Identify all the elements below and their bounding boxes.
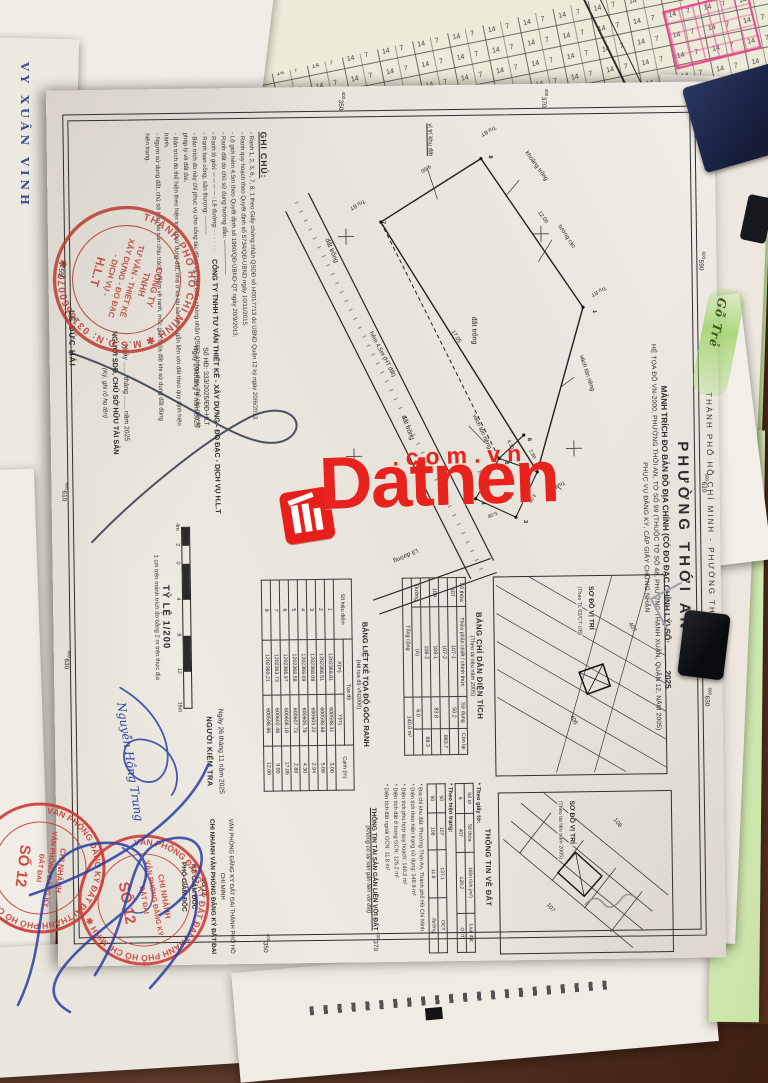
col-point-id: Số hiệu điểm: [333, 579, 352, 639]
grid-coordinate-label: 600610: [700, 473, 709, 492]
sketch-1-caption: SƠ ĐỒ VỊ TRÍ: [587, 584, 595, 632]
table-cell: OCT: [438, 898, 448, 953]
grid-coordinate-label: 600630: [703, 687, 712, 706]
legal-info-table: Số tờ Số thửa Diện tích (m²) Loại đất 64…: [455, 783, 476, 953]
watermark-domain-suffix: .com.vn: [392, 440, 529, 472]
table-cell: [440, 697, 449, 728]
table-cell: 600598.31: [326, 695, 336, 745]
info-section-legal: * Theo giấy tờ:: [475, 783, 483, 953]
table-cell: [431, 728, 440, 755]
table-cell: 1202368.08: [307, 640, 317, 695]
table-cell: [420, 578, 429, 607]
area-index-table: BẢNG CHỈ DẪN DIỆN TÍCH (Theo tài liệu nă…: [402, 577, 485, 756]
sketch-1-subcaption: (Theo TL 02/CT-UB): [576, 584, 583, 637]
col-dien-tich: Diện tích (m²): [465, 852, 475, 913]
table-cell: 107-1: [448, 607, 458, 697]
table-cell: (A): [412, 607, 422, 697]
table-cell: 600605.78: [299, 695, 309, 745]
table-cell: 1202369.09: [298, 640, 308, 695]
grid-coordinate-label: 400350: [262, 934, 271, 953]
col-x: X(m): [334, 639, 344, 694]
table-cell: 11.8: [428, 850, 438, 898]
table-cell: 12.00: [264, 746, 274, 791]
table-cell: 108: [429, 578, 438, 607]
checker-date: Ngày 26 tháng 11 năm 2025: [214, 676, 226, 826]
current-info-table: 50107137.1OCT5010811.8đường: [427, 783, 448, 953]
table-cell: 3: [306, 579, 316, 639]
table-cell: 17.05: [282, 746, 292, 791]
grid-coordinate-label: 400370: [540, 89, 549, 108]
svg-text:SỐ 12: SỐ 12: [115, 880, 140, 925]
table-cell: [413, 729, 422, 756]
location-sketch-1: 407 406 SƠ ĐỒ VỊ TRÍ (Theo TL 02/CT-UB): [493, 574, 668, 776]
table-cell: 1202363.73: [271, 640, 281, 695]
table-cell: [449, 728, 458, 755]
grid-coordinate-label: 600630: [63, 650, 72, 669]
land-info-block: THÔNG TIN VỀ ĐẤT * Theo giấy tờ: Số tờ S…: [364, 783, 494, 955]
total-value: 140.0 m²: [404, 698, 414, 756]
table-cell: 107: [437, 813, 447, 850]
table-cell: 108-2: [421, 607, 431, 697]
table-cell: 6: [279, 580, 289, 640]
col-so-thua2: Số thửa: [465, 813, 475, 852]
table-cell: 4: [297, 580, 307, 640]
svg-text:SỐ 12: SỐ 12: [12, 844, 35, 888]
scale-bar-label: 16m: [176, 702, 182, 713]
svg-text:108: 108: [612, 817, 623, 829]
col-con-lai: Còn lại: [458, 728, 467, 755]
table-cell: 1202366.97: [280, 640, 290, 695]
scale-bar-label: 12: [176, 668, 182, 674]
coords-table: Số hiệu điểm Tọa độ Cạnh (m) X(m) Y(m) 1…: [261, 578, 355, 791]
scale-bar-label: 8: [176, 633, 182, 636]
table-cell: 6: [455, 783, 464, 813]
location-sketch-2: 108 107 SƠ ĐỒ VỊ TRÍ (Theo tài liệu năm …: [498, 790, 674, 954]
total-label: Tổng cộng: [402, 578, 413, 698]
table-cell: 83.8: [431, 697, 440, 728]
table-cell: OCT: [457, 913, 467, 952]
col-loai-dat: Loại đất: [466, 913, 476, 952]
table-cell: 3.00: [327, 745, 337, 790]
scale-bar-label: 0: [175, 561, 181, 564]
binder-clip-black: [677, 609, 731, 680]
table-cell: 2: [315, 579, 325, 639]
col-so-thua: Số thửa: [456, 577, 465, 606]
plot-label: vị trí khu đất: [426, 123, 432, 156]
scale-title: TỶ LỆ 1/200: [159, 527, 173, 707]
table-cell: 600598.96: [263, 695, 273, 745]
table-cell: 1202368.51: [316, 639, 326, 694]
black-square-mark: [425, 1007, 443, 1020]
table-cell: Đường: [411, 578, 420, 607]
table-cell: 2.94: [309, 745, 319, 790]
scale-bar-label: 2: [174, 543, 180, 546]
col-coordinates: Tọa độ: [343, 639, 353, 745]
table-cell: 128.2: [456, 852, 466, 913]
grid-coordinate-label: 600610: [60, 482, 69, 501]
location-sketch-2-drawing: 108 107: [501, 791, 673, 951]
table-cell: 4.30: [300, 745, 310, 790]
table-cell: 600607.73: [290, 695, 300, 745]
plot-label: đất trống: [470, 317, 477, 345]
boundary-point-number: 7: [380, 221, 386, 224]
scale-bar-label: 4: [175, 597, 181, 600]
table-cell: 50.2: [449, 697, 458, 728]
table-cell: 107-2: [439, 607, 449, 697]
table-cell: 108: [428, 813, 438, 850]
table-cell: 8: [261, 580, 271, 640]
table-cell: 88.3: [422, 728, 431, 755]
info-section-current: * Theo hiện trạng:: [447, 783, 455, 953]
table-cell: 1: [324, 579, 334, 639]
table-cell: [438, 578, 447, 607]
table-cell: 50: [436, 784, 445, 813]
grid-coordinate-label: 400350: [337, 92, 346, 111]
table-cell: 1202360.21: [262, 640, 272, 695]
handwritten-name-vy-xuan-vinh: VY XUÂN VINH: [18, 62, 32, 209]
watermark: Datnen .com.vn: [266, 433, 670, 577]
boundary-point-number: 8: [487, 155, 493, 158]
land-info-bullet: * Địa chỉ khu đất: Phường Thới An, Thành…: [415, 783, 426, 953]
scale-block: 4m20481216m TỶ LỆ 1/200 1 cm trên mảnh t…: [152, 527, 193, 708]
table-cell: 2.80: [291, 745, 301, 790]
table-cell: 1202369.81: [325, 639, 335, 694]
tick-marks-row: [309, 980, 609, 1015]
table-cell: 600608.18: [281, 695, 291, 745]
corner-coordinates-table: BẢNG LIỆT KÊ TỌA ĐỘ GÓC RANH (Hệ tọa độ …: [261, 578, 372, 791]
checker-role: NGƯỜI KIỂM TRA: [203, 676, 216, 826]
area-table: Số thửa Thửa phân chiết / chính thức Sử …: [402, 577, 468, 756]
col-edge-length: Cạnh (m): [336, 745, 355, 791]
table-cell: 5: [288, 580, 298, 640]
table-cell: 600602.48: [272, 695, 282, 745]
col-thua-phan-chiet: Thửa phân chiết / chính thức: [457, 607, 467, 697]
table-cell: 5.08: [318, 745, 328, 790]
registry-stamp-so12-right: VĂN PHÒNG ĐĂNG KÝ ĐẤT ĐAI THÀNH PHỐ HỒ C…: [63, 819, 225, 981]
table-cell: 108-1: [430, 607, 440, 697]
green-tab-handwriting: Gỗ Trẻ: [706, 297, 729, 349]
sketch-2-caption: SƠ ĐỒ VỊ TRÍ: [568, 798, 576, 846]
sketch-2-subcaption: (Theo tài liệu năm 2005): [557, 799, 564, 862]
checker-block: Ngày 26 tháng 11 năm 2025 NGƯỜI KIỂM TRA: [203, 676, 226, 826]
col-so-to: Số tờ: [464, 783, 473, 813]
col-su-dung: Sử dụng: [458, 697, 467, 728]
grid-coordinate-label: 600590: [697, 252, 706, 271]
table-cell: 7: [270, 580, 280, 640]
table-cell: 9.00: [273, 746, 283, 791]
table-cell: [422, 697, 431, 728]
table-cell: 883.7: [440, 728, 449, 755]
col-y: Y(m): [335, 694, 345, 744]
table-cell: 1202368.58: [289, 640, 299, 695]
table-cell: 137.1: [437, 849, 447, 897]
table-cell: 6.0: [413, 697, 422, 728]
grid-coordinate-label: 400370: [372, 932, 381, 951]
svg-text:407: 407: [627, 622, 638, 634]
svg-text:107: 107: [545, 902, 556, 914]
table-cell: 107: [447, 578, 456, 607]
boundary-point-number: 1: [591, 310, 597, 313]
grid-coordinate-label: 600590: [57, 260, 66, 279]
scale-bar-label: 4m: [174, 523, 180, 531]
table-cell: 600598.98: [317, 695, 327, 745]
table-cell: đường: [429, 898, 439, 953]
land-info-bullets: * Địa chỉ khu đất: Phường Thới An, Thành…: [382, 783, 426, 954]
table-cell: 600603.22: [308, 695, 318, 745]
asset-info-title: THÔNG TIN TÀI SẢN GẮN LIỀN VỚI ĐẤT: [370, 784, 379, 954]
table-cell: 50: [427, 784, 436, 813]
table-cell: 407: [456, 813, 466, 852]
